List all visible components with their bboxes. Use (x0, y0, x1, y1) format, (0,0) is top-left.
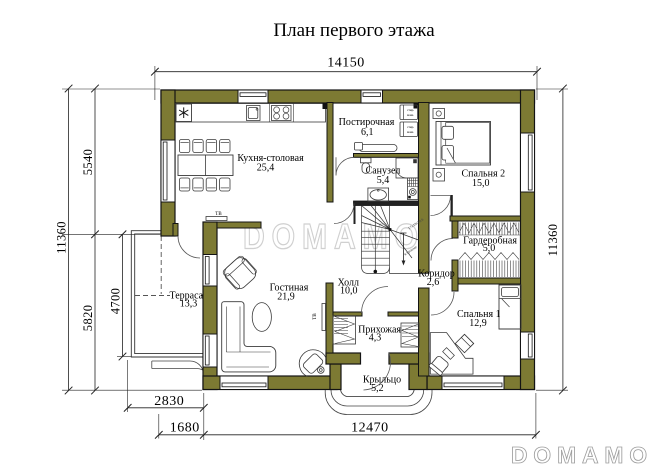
svg-text:2830: 2830 (154, 394, 184, 409)
svg-text:5,0: 5,0 (483, 243, 496, 254)
svg-text:5540: 5540 (81, 149, 95, 176)
svg-text:1680: 1680 (170, 421, 200, 436)
svg-text:11360: 11360 (55, 221, 69, 254)
svg-text:13,3: 13,3 (180, 299, 198, 310)
svg-text:10,0: 10,0 (340, 286, 358, 297)
svg-text:11360: 11360 (546, 224, 560, 257)
svg-text:DOMAMO: DOMAMO (511, 442, 653, 468)
svg-text:ТВ: ТВ (215, 212, 222, 217)
svg-text:12,9: 12,9 (469, 318, 487, 329)
svg-text:15,0: 15,0 (472, 178, 490, 189)
svg-text:маш.: маш. (407, 113, 414, 117)
svg-text:6,1: 6,1 (361, 127, 374, 138)
svg-text:5820: 5820 (81, 305, 95, 332)
svg-text:4,3: 4,3 (369, 333, 382, 344)
svg-text:21,9: 21,9 (277, 291, 295, 302)
svg-text:5,2: 5,2 (371, 383, 384, 394)
svg-text:стир.: стир. (407, 125, 414, 129)
svg-text:5,4: 5,4 (377, 175, 390, 186)
svg-text:План первого этажа: План первого этажа (273, 20, 435, 41)
svg-text:25,4: 25,4 (257, 163, 275, 174)
svg-text:ТВ: ТВ (313, 313, 318, 320)
svg-text:маш.: маш. (407, 130, 414, 134)
svg-text:2,6: 2,6 (427, 277, 440, 288)
svg-text:12470: 12470 (351, 421, 389, 436)
svg-text:14150: 14150 (327, 55, 365, 70)
svg-text:стир.: стир. (407, 108, 414, 112)
svg-text:4700: 4700 (109, 288, 123, 315)
